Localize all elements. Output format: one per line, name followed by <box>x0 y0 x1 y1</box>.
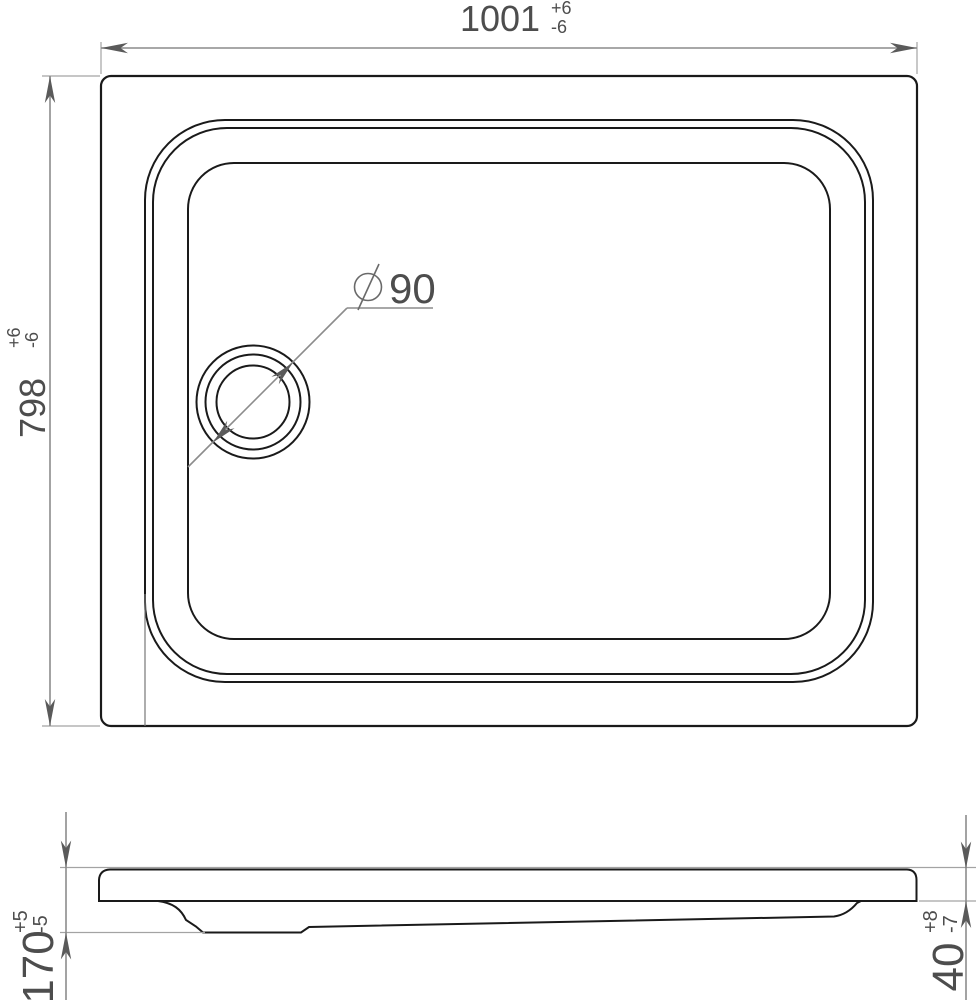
diameter-symbol-icon <box>355 264 382 310</box>
dim-width-value: 1001 <box>460 0 540 39</box>
profile-rim-outline <box>99 870 917 902</box>
dim-depth: 798 +6 -6 <box>4 76 100 726</box>
tray-outer-outline <box>101 76 917 726</box>
side-view <box>99 870 917 933</box>
dim-width: 1001 +6 -6 <box>101 0 917 74</box>
dim-height-value: 170 <box>14 930 63 1000</box>
dim-width-tol-plus: +6 <box>551 0 572 18</box>
dim-rim-height: 40 +8 -7 <box>919 815 976 1000</box>
dim-drain-diameter: 90 <box>188 264 436 467</box>
dim-depth-value: 798 <box>12 378 53 438</box>
dim-drain-value: 90 <box>389 265 436 312</box>
profile-underside-outline <box>158 901 861 933</box>
basin-floor-line <box>188 163 830 639</box>
dim-depth-tol-plus: +6 <box>4 327 24 348</box>
dim-height-tol-plus: +5 <box>10 910 32 933</box>
diameter-symbol-slash <box>358 264 379 310</box>
dim-height: 170 +5 -5 <box>10 812 976 1000</box>
dim-rim-value: 40 <box>924 943 973 992</box>
dim-width-tol-minus: -6 <box>551 17 567 37</box>
rim-inner-line-2 <box>153 128 865 674</box>
dim-height-tol-minus: -5 <box>30 915 52 933</box>
top-view <box>101 76 917 726</box>
dim-rim-tol-plus: +8 <box>920 910 942 933</box>
shower-tray-drawing: 90 1001 +6 -6 798 +6 -6 <box>0 0 976 1000</box>
drain-leader-diagonal <box>188 308 347 467</box>
dim-rim-tol-minus: -7 <box>940 915 962 933</box>
technical-drawing-canvas: 90 1001 +6 -6 798 +6 -6 <box>0 0 976 1000</box>
dim-depth-tol-minus: -6 <box>22 332 42 348</box>
